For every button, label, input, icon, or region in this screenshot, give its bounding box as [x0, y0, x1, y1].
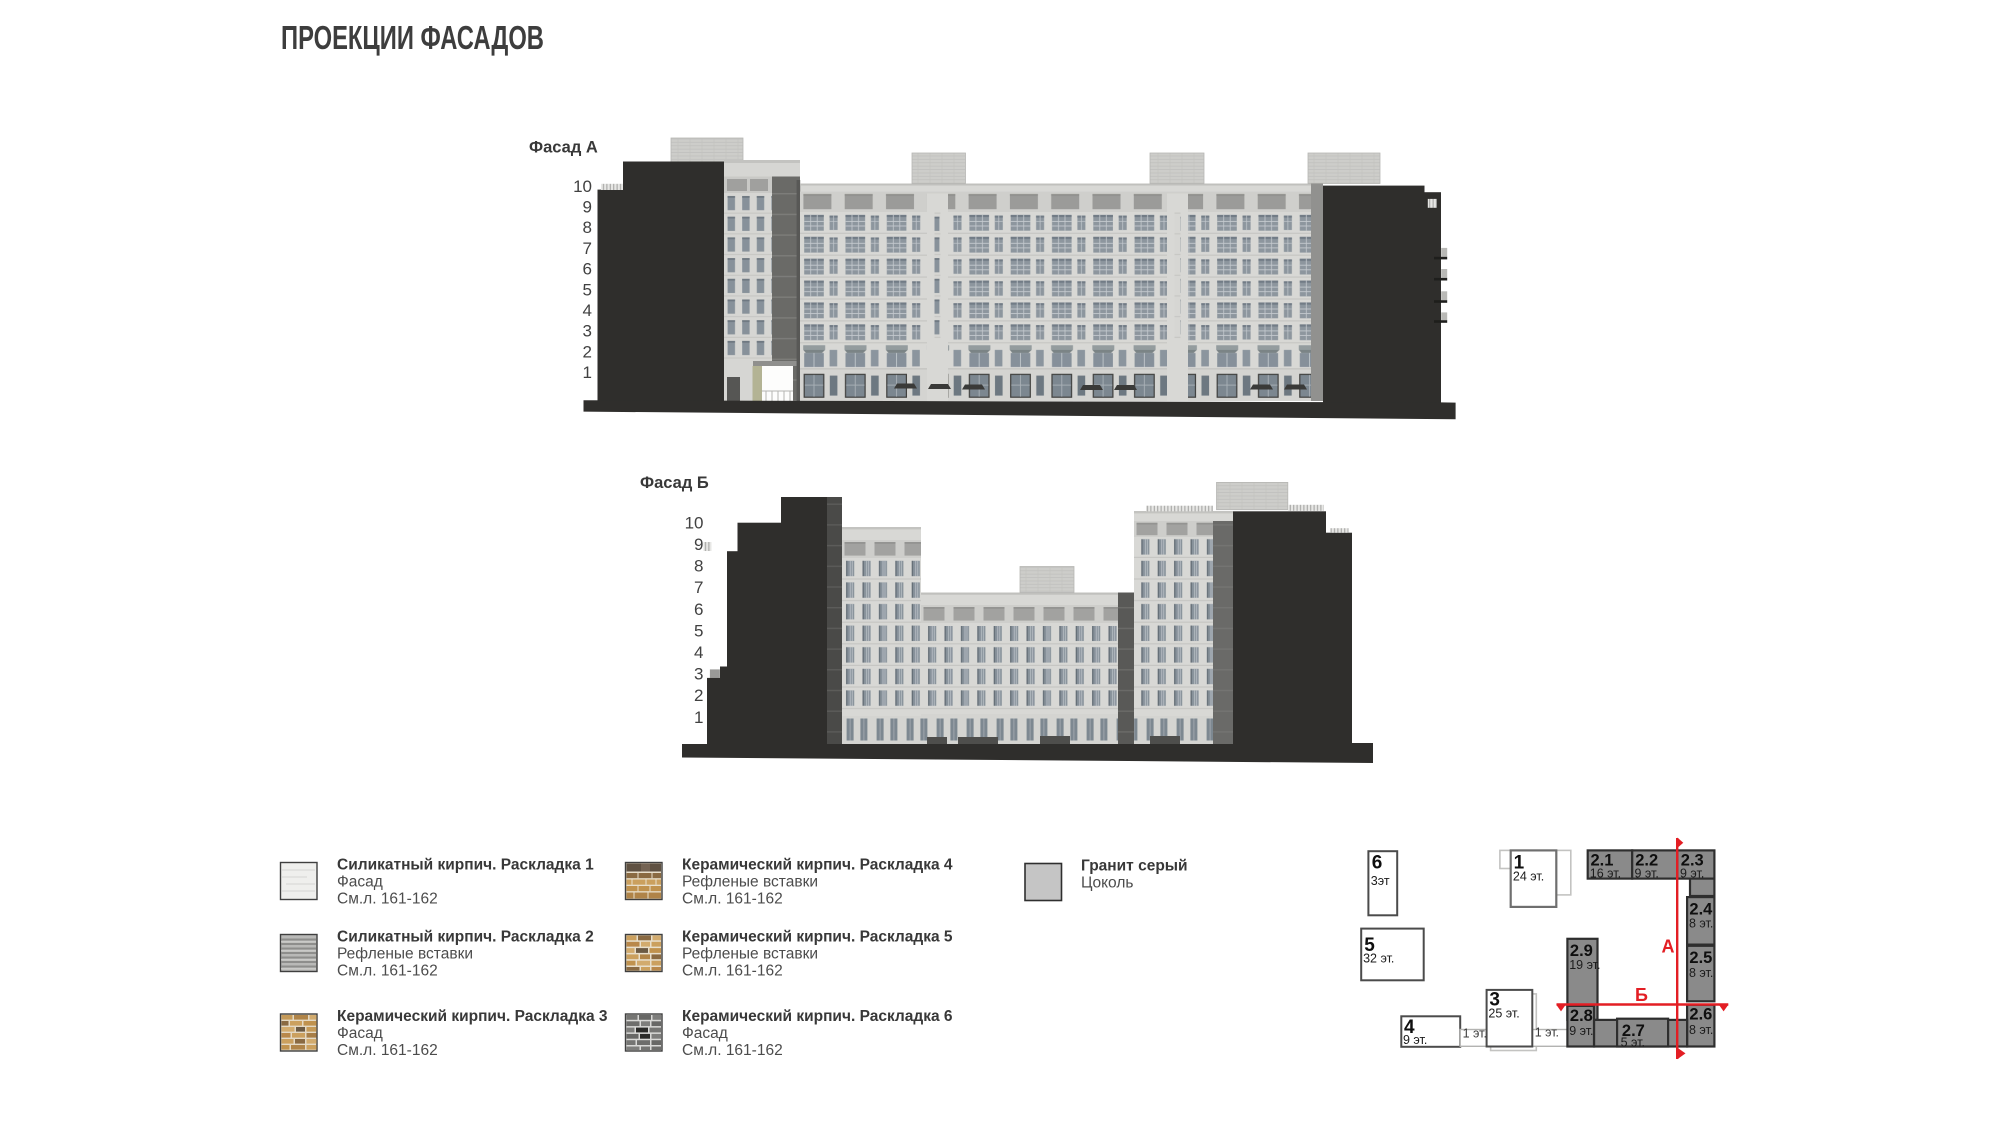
svg-text:8: 8: [583, 218, 592, 237]
svg-text:Силикатный кирпич. Раскладка 1: Силикатный кирпич. Раскладка 1: [337, 857, 594, 874]
svg-text:Фасад А: Фасад А: [529, 139, 598, 157]
svg-text:9 эт.: 9 эт.: [1635, 867, 1659, 881]
svg-text:См.л. 161-162: См.л. 161-162: [337, 890, 438, 907]
svg-text:6: 6: [583, 260, 592, 279]
svg-text:Цоколь: Цоколь: [1081, 875, 1133, 892]
svg-text:32 эт.: 32 эт.: [1363, 951, 1394, 965]
svg-text:Фасад: Фасад: [337, 874, 383, 891]
svg-text:2: 2: [694, 686, 703, 705]
svg-text:9 эт.: 9 эт.: [1680, 867, 1704, 881]
svg-text:6: 6: [694, 600, 703, 619]
svg-text:24 эт.: 24 эт.: [1513, 869, 1544, 883]
svg-text:Фасад: Фасад: [682, 1025, 728, 1042]
svg-text:1: 1: [583, 363, 592, 382]
svg-text:9 эт.: 9 эт.: [1403, 1033, 1427, 1047]
svg-text:2: 2: [583, 342, 592, 361]
svg-text:Фасад: Фасад: [337, 1025, 383, 1042]
svg-text:2.6: 2.6: [1689, 1006, 1712, 1024]
svg-text:Керамический кирпич. Раскладка: Керамический кирпич. Раскладка 6: [682, 1008, 953, 1025]
svg-text:А: А: [1662, 937, 1675, 957]
svg-text:4: 4: [583, 301, 592, 320]
svg-text:Б: Б: [1635, 985, 1648, 1005]
svg-text:3эт: 3эт: [1371, 874, 1390, 888]
svg-text:19 эт.: 19 эт.: [1569, 958, 1600, 972]
svg-text:5: 5: [583, 280, 592, 299]
svg-text:3: 3: [694, 665, 703, 684]
svg-text:5 эт.: 5 эт.: [1621, 1036, 1645, 1050]
svg-text:6: 6: [1372, 853, 1383, 874]
svg-text:Рефленые вставки: Рефленые вставки: [337, 946, 473, 963]
svg-text:См.л. 161-162: См.л. 161-162: [682, 962, 783, 979]
svg-text:25 эт.: 25 эт.: [1488, 1006, 1519, 1020]
svg-text:1: 1: [694, 708, 703, 727]
svg-text:Гранит серый: Гранит серый: [1081, 858, 1188, 875]
svg-text:Рефленые вставки: Рефленые вставки: [682, 946, 818, 963]
svg-text:См.л. 161-162: См.л. 161-162: [682, 890, 783, 907]
svg-text:Силикатный кирпич. Раскладка 2: Силикатный кирпич. Раскладка 2: [337, 929, 594, 946]
svg-text:Фасад Б: Фасад Б: [640, 474, 709, 492]
svg-text:8 эт.: 8 эт.: [1689, 1023, 1713, 1037]
svg-text:16 эт.: 16 эт.: [1590, 867, 1621, 881]
svg-text:9: 9: [583, 198, 592, 217]
svg-text:8 эт.: 8 эт.: [1689, 966, 1713, 980]
svg-text:2.5: 2.5: [1689, 949, 1712, 967]
svg-text:4: 4: [694, 643, 703, 662]
svg-text:8 эт.: 8 эт.: [1689, 916, 1713, 930]
svg-text:1 эт.: 1 эт.: [1463, 1026, 1487, 1040]
svg-text:Керамический кирпич. Раскладка: Керамический кирпич. Раскладка 3: [337, 1008, 608, 1025]
svg-text:5: 5: [694, 621, 703, 640]
svg-text:См.л. 161-162: См.л. 161-162: [682, 1042, 783, 1059]
svg-text:8: 8: [694, 557, 703, 576]
svg-text:10: 10: [685, 513, 704, 532]
svg-text:См.л. 161-162: См.л. 161-162: [337, 1042, 438, 1059]
svg-text:9 эт.: 9 эт.: [1569, 1024, 1593, 1038]
svg-text:9: 9: [694, 535, 703, 554]
svg-text:7: 7: [583, 239, 592, 258]
svg-text:2.8: 2.8: [1570, 1007, 1593, 1025]
svg-text:10: 10: [573, 177, 592, 196]
svg-text:Керамический кирпич. Раскладка: Керамический кирпич. Раскладка 5: [682, 929, 953, 946]
svg-text:Рефленые вставки: Рефленые вставки: [682, 874, 818, 891]
svg-text:1 эт.: 1 эт.: [1535, 1025, 1559, 1039]
svg-text:7: 7: [694, 578, 703, 597]
svg-text:Керамический кирпич. Раскладка: Керамический кирпич. Раскладка 4: [682, 857, 953, 874]
svg-text:См.л. 161-162: См.л. 161-162: [337, 962, 438, 979]
svg-text:ПРОЕКЦИИ ФАСАДОВ: ПРОЕКЦИИ ФАСАДОВ: [281, 20, 544, 57]
svg-text:3: 3: [583, 322, 592, 341]
